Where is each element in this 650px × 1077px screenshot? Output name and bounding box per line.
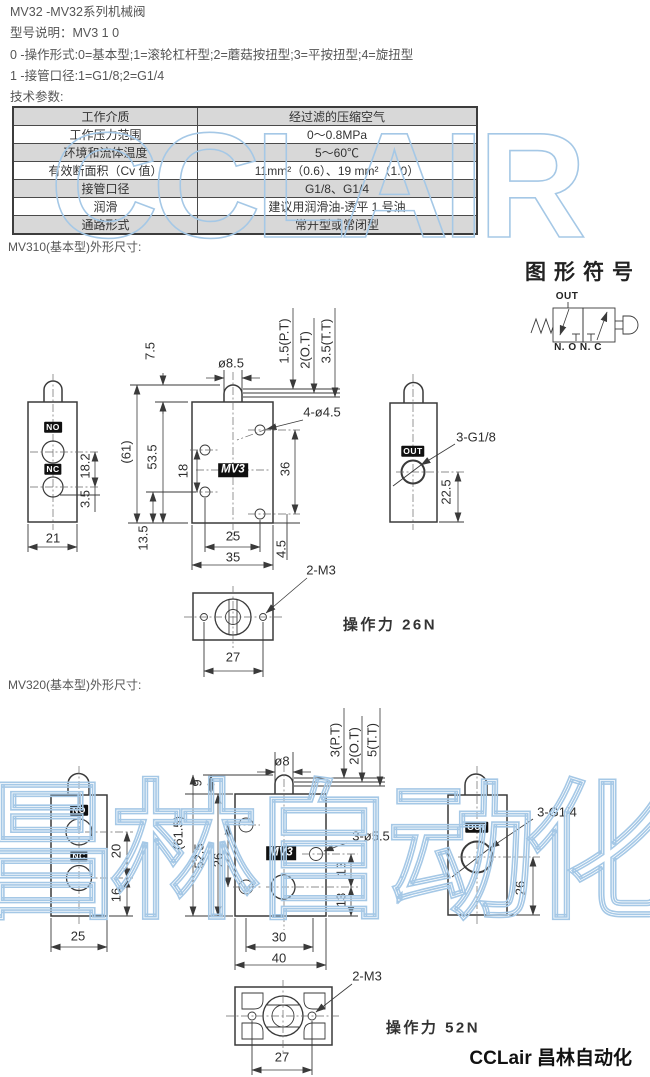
spec-param-value: G1/8、G1/4 (198, 180, 478, 198)
spec-param-name: 工作压力范围 (13, 126, 198, 144)
code-explanation-0: 0 -操作形式:0=基本型;1=滚轮杠杆型;2=蘑菇按扭型;3=平按扭型;4=旋… (10, 48, 413, 63)
spec-param-name: 环境和流体温度 (13, 144, 198, 162)
code-explanation-1: 1 -接管口径:1=G1/8;2=G1/4 (10, 69, 164, 84)
spec-row: 接管口径G1/8、G1/4 (13, 180, 477, 198)
mv310-dimension-drawing (0, 300, 650, 680)
spec-param-name: 有效断面积（Cv 值） (13, 162, 198, 180)
page-title: MV32 -MV32系列机械阀 (10, 5, 145, 20)
spec-param-value: 11mm²（0.6）、19 mm²（1.0） (198, 162, 478, 180)
spec-param-value: 建议用润滑油-透平 1 号油 (198, 198, 478, 216)
datasheet-page: MV32 -MV32系列机械阀 型号说明：MV3 1 0 0 -操作形式:0=基… (0, 0, 650, 1077)
spec-param-name: 润滑 (13, 198, 198, 216)
spec-row: 润滑建议用润滑油-透平 1 号油 (13, 198, 477, 216)
spec-row: 通路形式常开型或常闭型 (13, 216, 477, 235)
spec-param-name: 通路形式 (13, 216, 198, 235)
mv310-section-heading: MV310(基本型)外形尺寸: (8, 238, 141, 255)
spec-row: 有效断面积（Cv 值）11mm²（0.6）、19 mm²（1.0） (13, 162, 477, 180)
spec-param-value: 常开型或常闭型 (198, 216, 478, 235)
tech-params-heading: 技术参数: (10, 90, 63, 105)
model-description: 型号说明：MV3 1 0 (10, 26, 119, 41)
brand-footer: CCLair 昌林自动化 (440, 1043, 632, 1070)
spec-row: 工作压力范围0～0.8MPa (13, 126, 477, 144)
spec-param-name: 接管口径 (13, 180, 198, 198)
spec-param-value: 0～0.8MPa (198, 126, 478, 144)
spec-param-value: 经过滤的压缩空气 (198, 107, 478, 126)
spec-row: 环境和流体温度5～60℃ (13, 144, 477, 162)
spec-param-value: 5～60℃ (198, 144, 478, 162)
spec-row: 工作介质经过滤的压缩空气 (13, 107, 477, 126)
spec-table: 工作介质经过滤的压缩空气工作压力范围0～0.8MPa环境和流体温度5～60℃有效… (12, 106, 478, 235)
spec-param-name: 工作介质 (13, 107, 198, 126)
mv320-dimension-drawing (0, 700, 650, 1077)
graphic-symbol-heading: 图形符号 (518, 256, 648, 286)
